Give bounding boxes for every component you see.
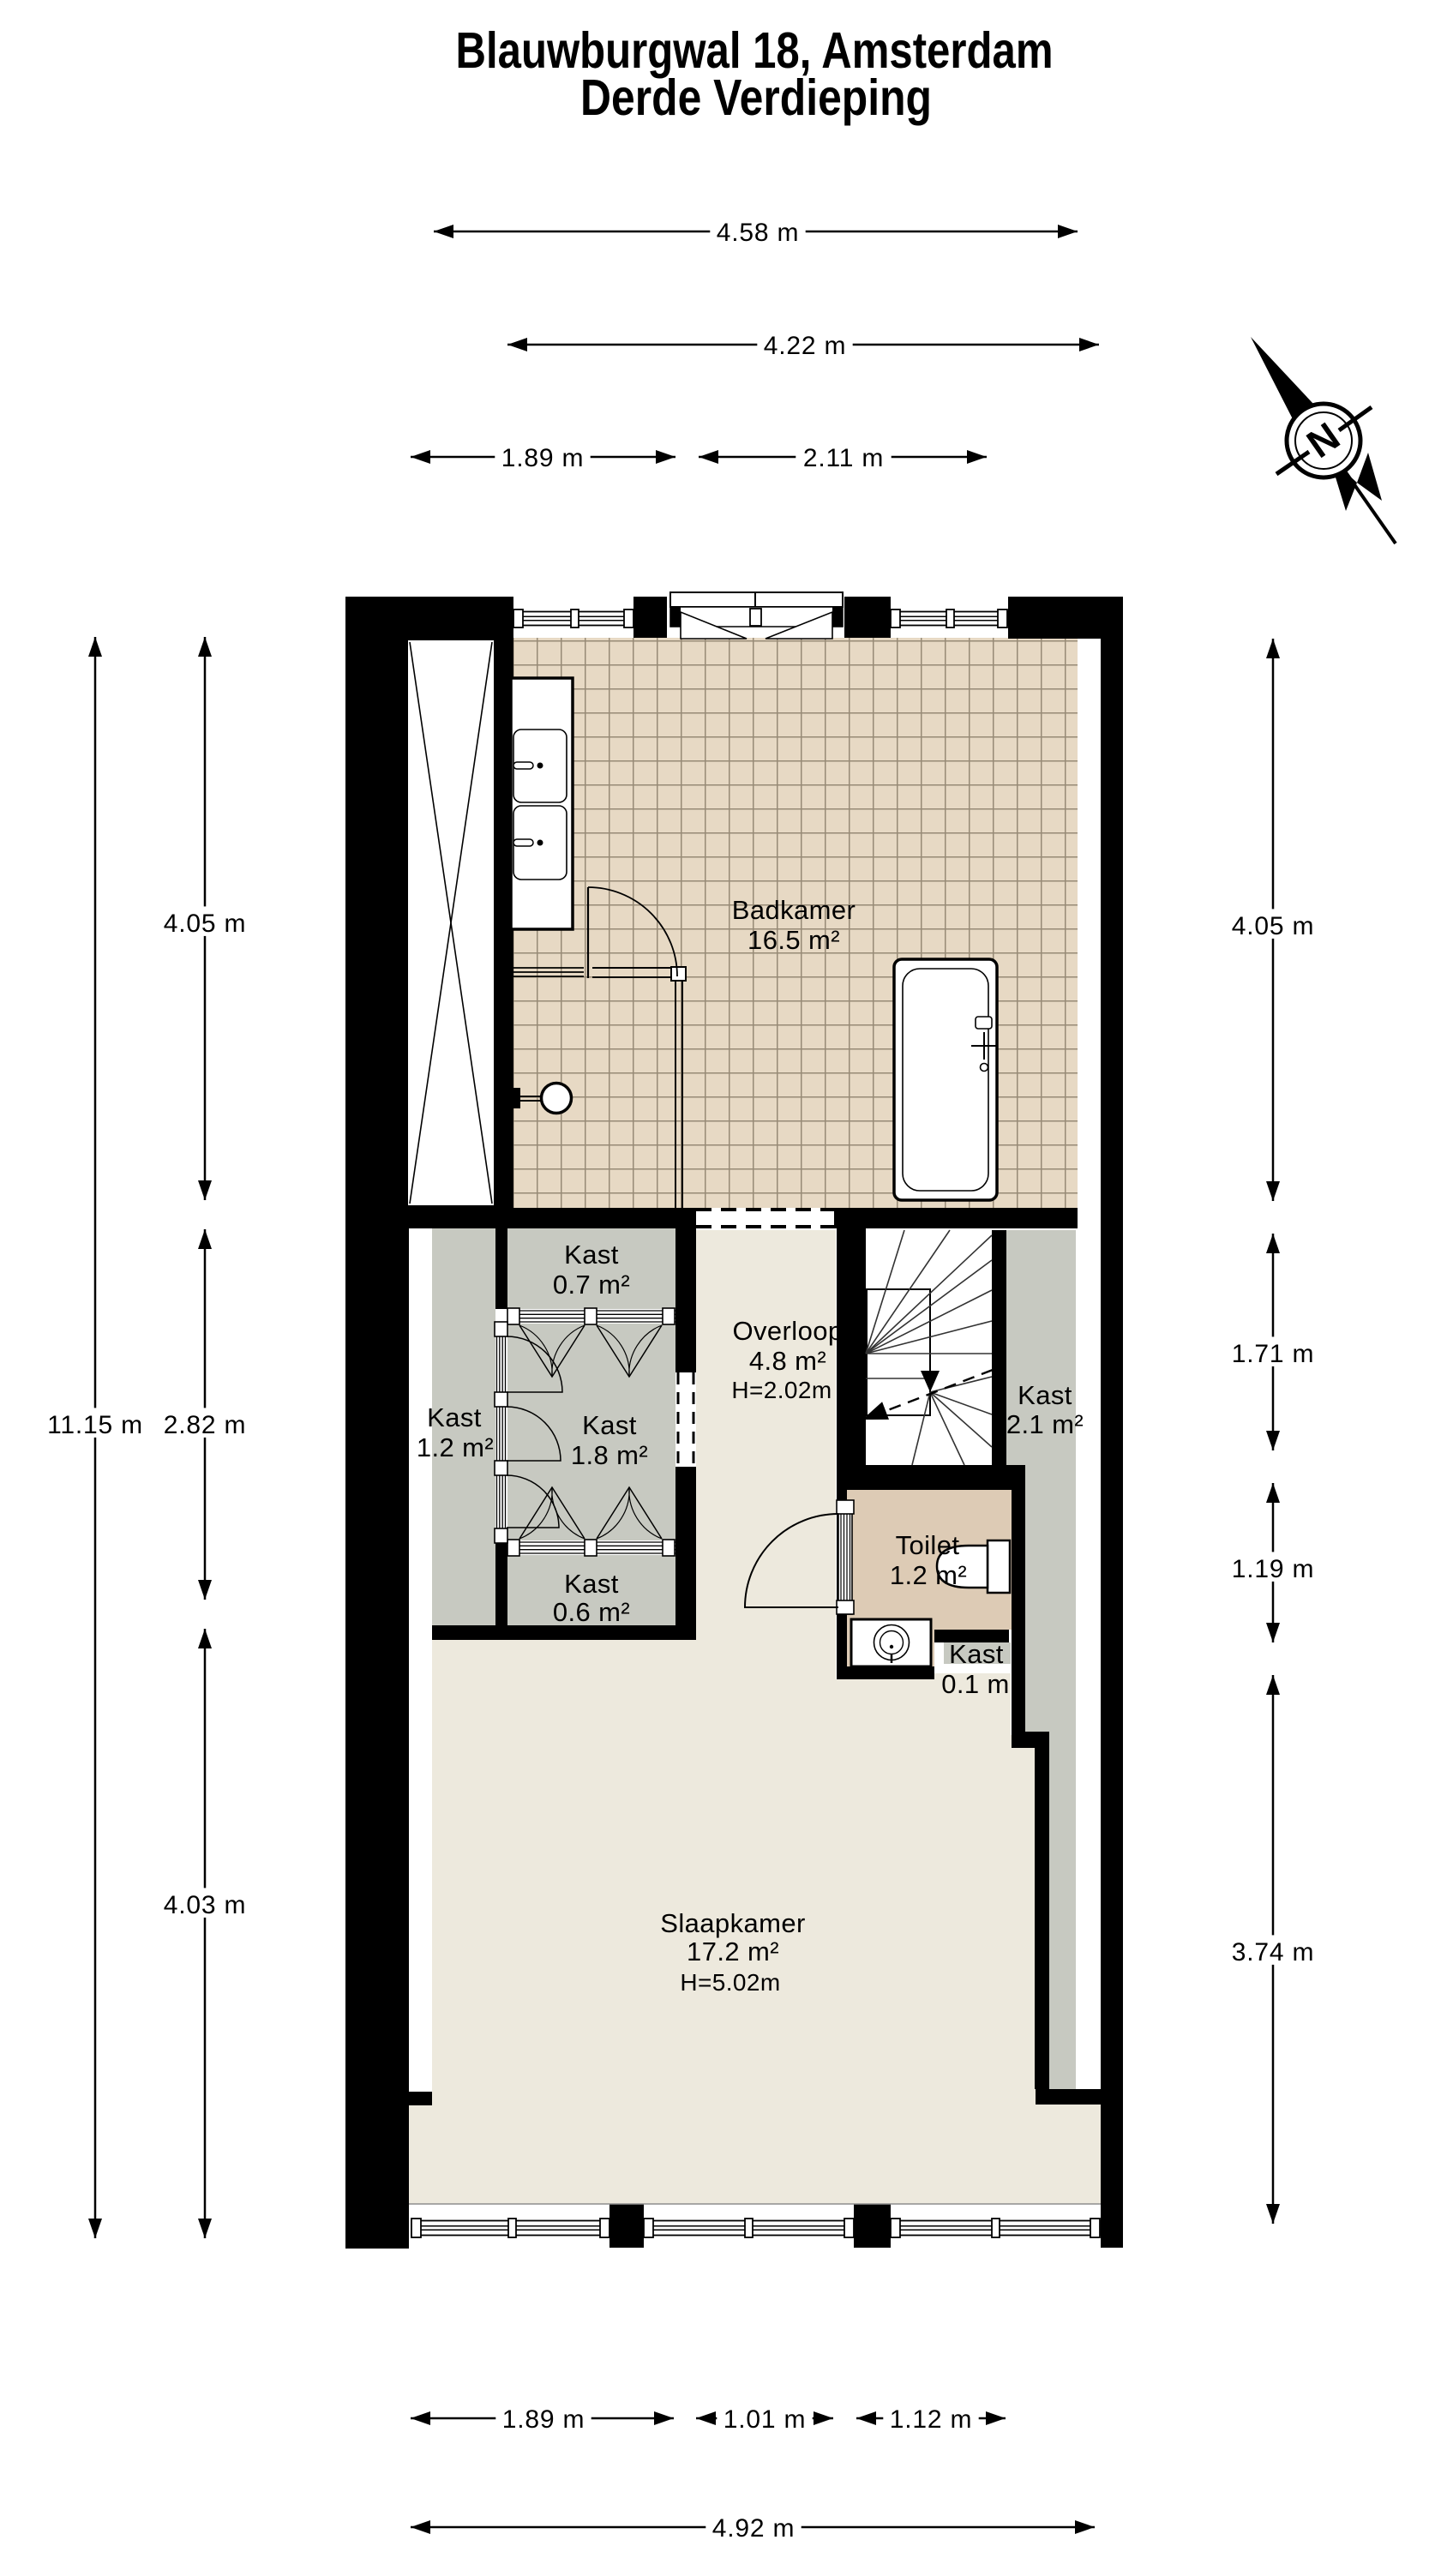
svg-text:4.22 m: 4.22 m [764, 332, 847, 360]
svg-text:Slaapkamer: Slaapkamer [660, 1908, 805, 1938]
svg-text:1.8 m²: 1.8 m² [571, 1440, 648, 1470]
svg-text:2.82 m: 2.82 m [164, 1411, 247, 1439]
svg-text:1.89 m: 1.89 m [501, 444, 585, 472]
svg-text:4.03 m: 4.03 m [164, 1891, 247, 1919]
svg-text:4.92 m: 4.92 m [712, 2514, 796, 2543]
svg-text:Kast: Kast [564, 1569, 619, 1599]
svg-text:2.11 m: 2.11 m [803, 444, 884, 472]
svg-text:Kast: Kast [427, 1402, 482, 1432]
svg-text:1.19 m: 1.19 m [1232, 1555, 1315, 1583]
svg-text:Kast: Kast [582, 1410, 637, 1440]
svg-text:17.2 m²: 17.2 m² [687, 1937, 779, 1967]
svg-text:0.7 m²: 0.7 m² [553, 1270, 630, 1300]
svg-text:4.05 m: 4.05 m [1232, 912, 1315, 940]
svg-text:Kast: Kast [564, 1240, 619, 1270]
svg-text:1.2 m²: 1.2 m² [417, 1432, 494, 1462]
svg-text:1.01 m: 1.01 m [723, 2405, 807, 2434]
svg-text:Overloop: Overloop [733, 1316, 844, 1346]
svg-text:2.1 m²: 2.1 m² [1006, 1409, 1084, 1439]
svg-text:4.8 m²: 4.8 m² [749, 1346, 826, 1376]
svg-text:0.6 m²: 0.6 m² [553, 1597, 630, 1627]
svg-text:Derde Verdieping: Derde Verdieping [580, 69, 932, 126]
svg-text:1.12 m: 1.12 m [890, 2405, 973, 2434]
svg-text:11.15 m: 11.15 m [47, 1411, 143, 1439]
svg-text:Kast: Kast [1018, 1380, 1072, 1410]
svg-text:3.74 m: 3.74 m [1232, 1938, 1315, 1967]
svg-text:Kast: Kast [949, 1639, 1004, 1669]
svg-text:4.05 m: 4.05 m [164, 910, 247, 938]
svg-text:Badkamer: Badkamer [732, 895, 856, 925]
svg-text:0.1 m: 0.1 m [941, 1669, 1010, 1699]
svg-text:Toilet: Toilet [896, 1530, 960, 1560]
svg-text:4.58 m: 4.58 m [717, 219, 800, 247]
svg-text:16.5 m²: 16.5 m² [748, 925, 840, 955]
svg-text:H=2.02m: H=2.02m [731, 1377, 832, 1403]
svg-text:1.71 m: 1.71 m [1232, 1340, 1315, 1368]
svg-text:1.89 m: 1.89 m [502, 2405, 585, 2434]
svg-text:1.2 m²: 1.2 m² [890, 1560, 967, 1590]
svg-text:H=5.02m: H=5.02m [680, 1969, 780, 1996]
